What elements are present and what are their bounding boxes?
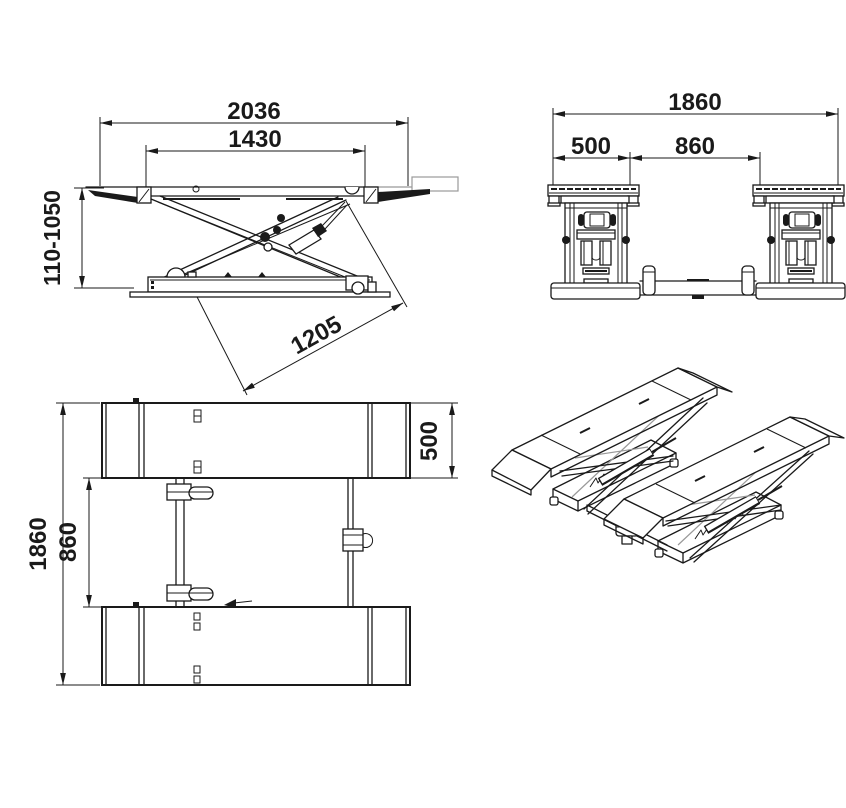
tube-post bbox=[742, 266, 754, 295]
technical-drawing-canvas: 2036 1430 110-1050 1205 bbox=[0, 0, 846, 808]
pivot-bolt bbox=[273, 226, 281, 234]
top-platform-upper bbox=[102, 398, 410, 478]
dim-label-top-platform: 500 bbox=[416, 421, 443, 461]
base-roller bbox=[352, 282, 364, 294]
dim-label-top-inner: 860 bbox=[55, 522, 82, 562]
side-platform bbox=[86, 177, 458, 203]
front-tower bbox=[548, 185, 640, 299]
top-platform-lower bbox=[102, 602, 410, 685]
top-connecting-bar-right bbox=[343, 478, 373, 607]
scissor-arm-outer bbox=[151, 196, 362, 283]
dim-label-platform-length: 1430 bbox=[228, 126, 281, 153]
side-base-frame bbox=[130, 268, 390, 297]
dim-top-inner-spacing: 860 bbox=[55, 478, 140, 607]
scissor-lift-drawing: 2036 1430 110-1050 1205 bbox=[0, 0, 846, 808]
tower-platform-slab bbox=[548, 185, 639, 196]
front-tower-right bbox=[753, 185, 845, 299]
side-view: 2036 1430 110-1050 1205 bbox=[39, 98, 458, 395]
dim-side-platform-length: 1430 bbox=[146, 126, 365, 199]
dim-label-front-platform: 500 bbox=[571, 133, 611, 160]
front-view: 1860 500 860 bbox=[548, 89, 845, 299]
side-left-ramp-flap bbox=[88, 190, 138, 203]
dim-label-top-overall: 1860 bbox=[25, 517, 52, 570]
dim-label-front-inner: 860 bbox=[675, 133, 715, 160]
side-ramp-extended-gray bbox=[412, 177, 458, 191]
dim-label-height-range: 110-1050 bbox=[39, 190, 65, 286]
dim-label-base-length: 1205 bbox=[286, 311, 346, 360]
pivot-bolt bbox=[260, 232, 270, 242]
side-right-ramp-flap bbox=[378, 189, 430, 202]
isometric-view bbox=[492, 368, 844, 563]
dim-front-inner-width: 860 bbox=[630, 133, 760, 160]
pivot-bolt bbox=[277, 214, 285, 222]
side-notch bbox=[345, 187, 359, 194]
dim-top-platform-width: 500 bbox=[410, 403, 458, 478]
top-view: 1860 860 500 bbox=[25, 398, 458, 685]
dim-label-front-overall: 1860 bbox=[668, 89, 721, 116]
dim-label-overall-length: 2036 bbox=[227, 98, 280, 125]
dim-side-height-range: 110-1050 bbox=[39, 188, 134, 288]
tube-post bbox=[643, 266, 655, 295]
pivot-pin bbox=[264, 243, 272, 251]
front-connecting-tube bbox=[640, 266, 756, 299]
tower-base-plate bbox=[551, 283, 640, 299]
dim-front-platform-width: 500 bbox=[553, 133, 760, 186]
top-connecting-bar-left bbox=[167, 478, 213, 607]
